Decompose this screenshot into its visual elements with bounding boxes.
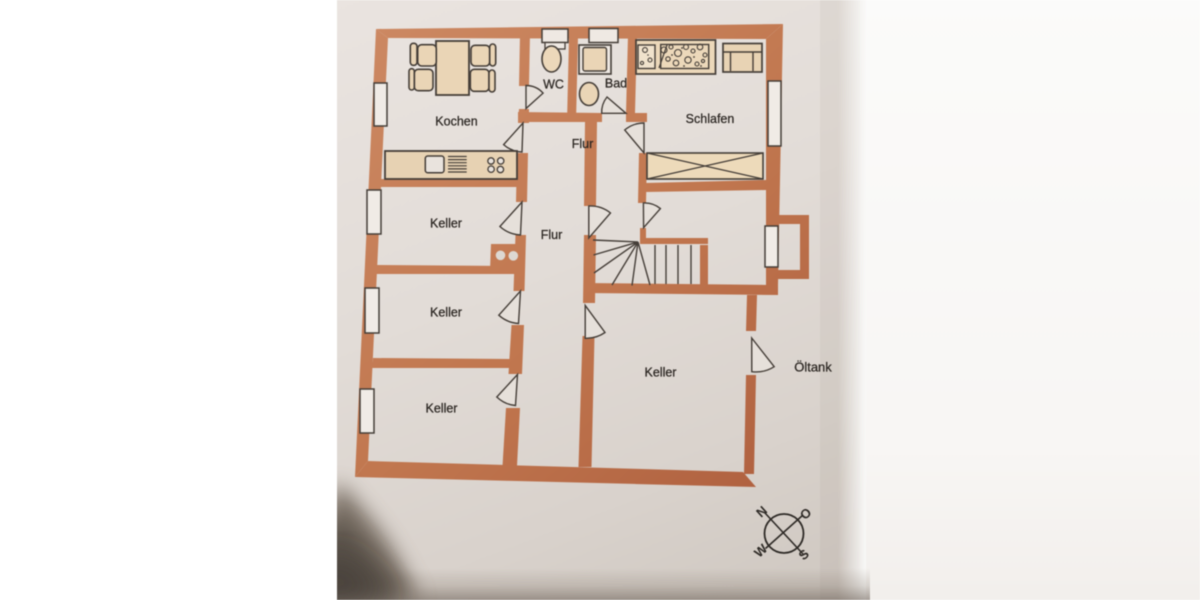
svg-text:Kochen: Kochen: [435, 115, 477, 129]
svg-text:Keller: Keller: [430, 306, 462, 320]
svg-text:Öltank: Öltank: [794, 360, 832, 375]
svg-text:WC: WC: [543, 78, 564, 92]
svg-text:Bad: Bad: [605, 77, 627, 91]
svg-text:Keller: Keller: [430, 217, 462, 231]
svg-text:Flur: Flur: [572, 137, 594, 151]
svg-text:Keller: Keller: [645, 366, 677, 380]
svg-text:Flur: Flur: [541, 228, 563, 242]
svg-text:Schlafen: Schlafen: [686, 112, 735, 126]
svg-text:Keller: Keller: [426, 402, 458, 416]
